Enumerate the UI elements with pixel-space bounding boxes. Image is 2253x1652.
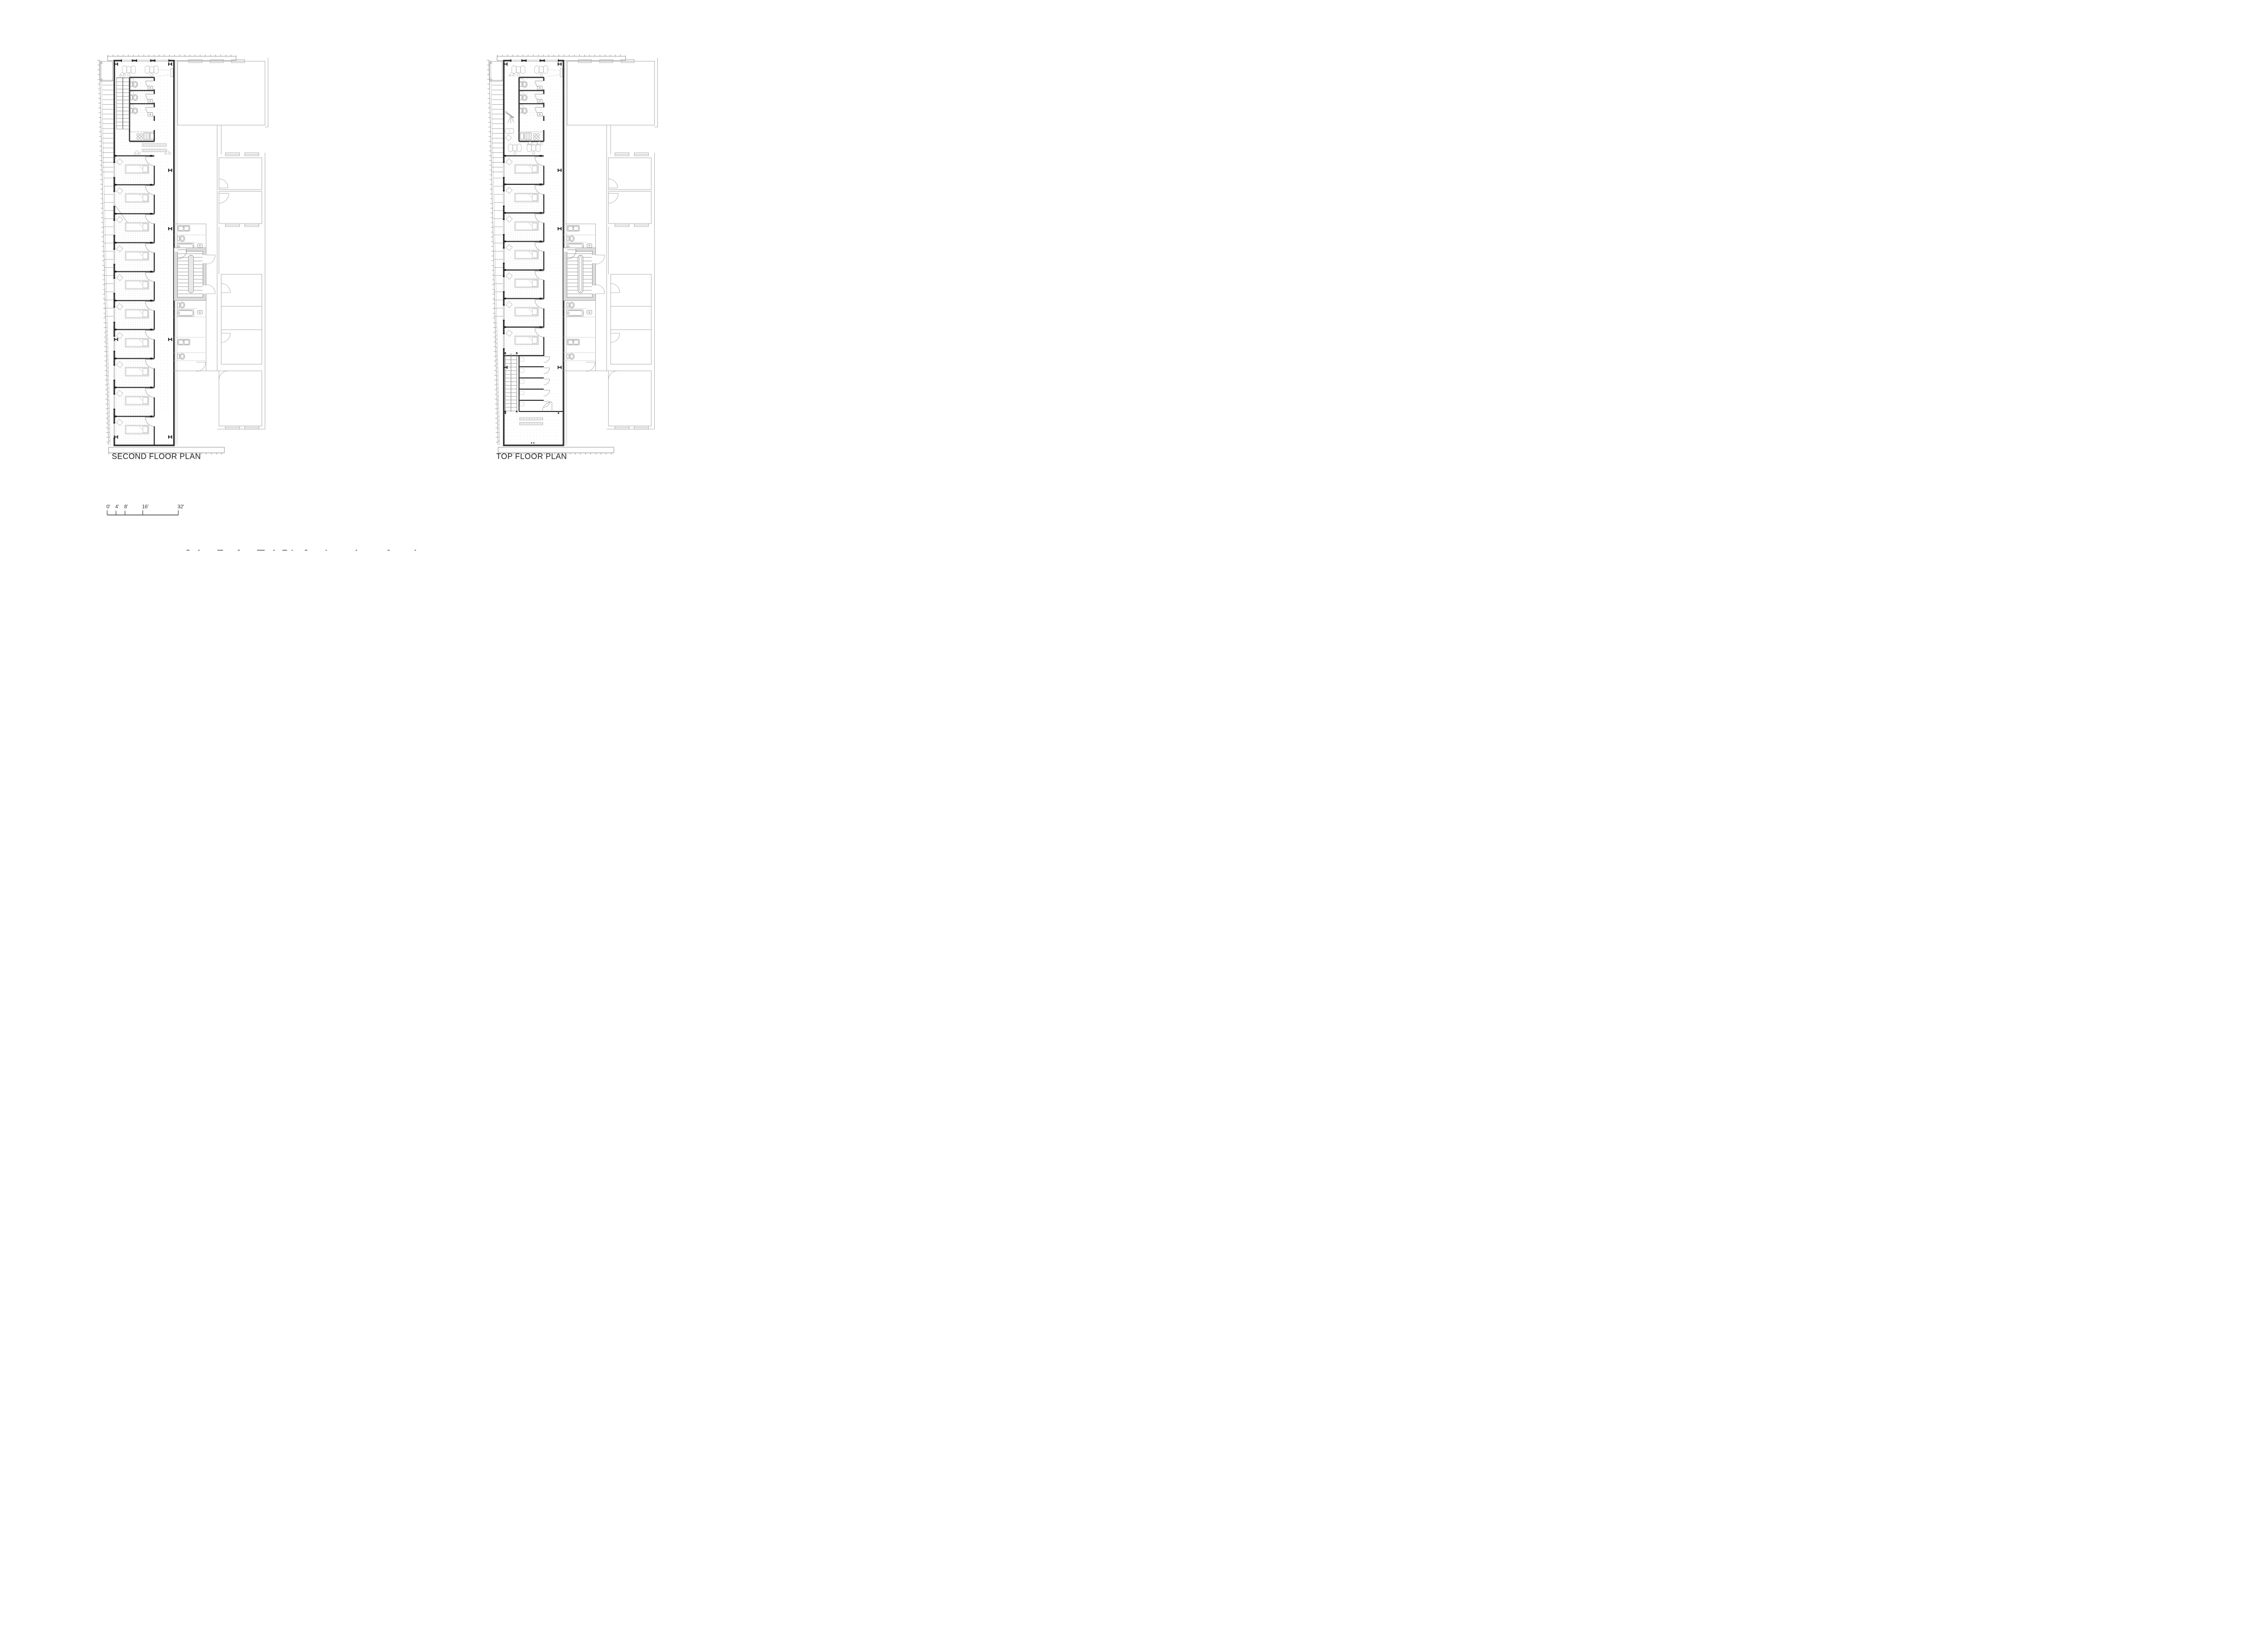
scale-tick-0: 0' bbox=[107, 504, 111, 510]
bottom-edge-cropped-marks bbox=[186, 550, 416, 551]
floor-plans-drawing: SECOND FLOOR PLAN bbox=[0, 0, 751, 551]
bedroom-unit bbox=[113, 416, 154, 446]
adjacent-building bbox=[174, 58, 268, 445]
bedroom-unit bbox=[113, 184, 154, 214]
bedroom-unit bbox=[503, 269, 544, 299]
drawing-sheet: SECOND FLOOR PLAN bbox=[0, 0, 751, 551]
top-floor-plan: TOP FLOOR PLAN bbox=[488, 55, 658, 461]
scale-bar: 0' 4' 8' 16' 32' bbox=[107, 504, 184, 515]
bedroom-unit bbox=[113, 242, 154, 272]
bedroom-unit bbox=[503, 183, 544, 213]
bedroom-unit bbox=[503, 298, 544, 328]
bedroom-unit bbox=[503, 155, 544, 185]
bedroom-rows bbox=[503, 155, 544, 356]
scale-tick-32: 32' bbox=[178, 504, 184, 510]
adjacent-building bbox=[563, 58, 657, 445]
bedroom-unit bbox=[113, 155, 154, 185]
second-floor-plan: SECOND FLOOR PLAN bbox=[99, 55, 268, 461]
bedroom-unit bbox=[113, 387, 154, 417]
bedroom-unit bbox=[113, 213, 154, 243]
plan-title-top-floor: TOP FLOOR PLAN bbox=[496, 452, 567, 461]
plan-title-second-floor: SECOND FLOOR PLAN bbox=[112, 452, 201, 461]
scale-tick-4: 4' bbox=[115, 504, 119, 510]
scale-tick-8: 8' bbox=[124, 504, 129, 510]
bedroom-unit bbox=[503, 326, 544, 356]
bedroom-unit bbox=[113, 329, 154, 359]
bedroom-rows bbox=[113, 155, 154, 446]
bedroom-unit bbox=[503, 241, 544, 271]
scale-tick-16: 16' bbox=[142, 504, 149, 510]
bedroom-unit bbox=[113, 300, 154, 330]
bedroom-unit bbox=[503, 212, 544, 242]
bedroom-unit bbox=[113, 358, 154, 388]
bedroom-unit bbox=[113, 271, 154, 301]
interior-stair bbox=[116, 77, 129, 129]
